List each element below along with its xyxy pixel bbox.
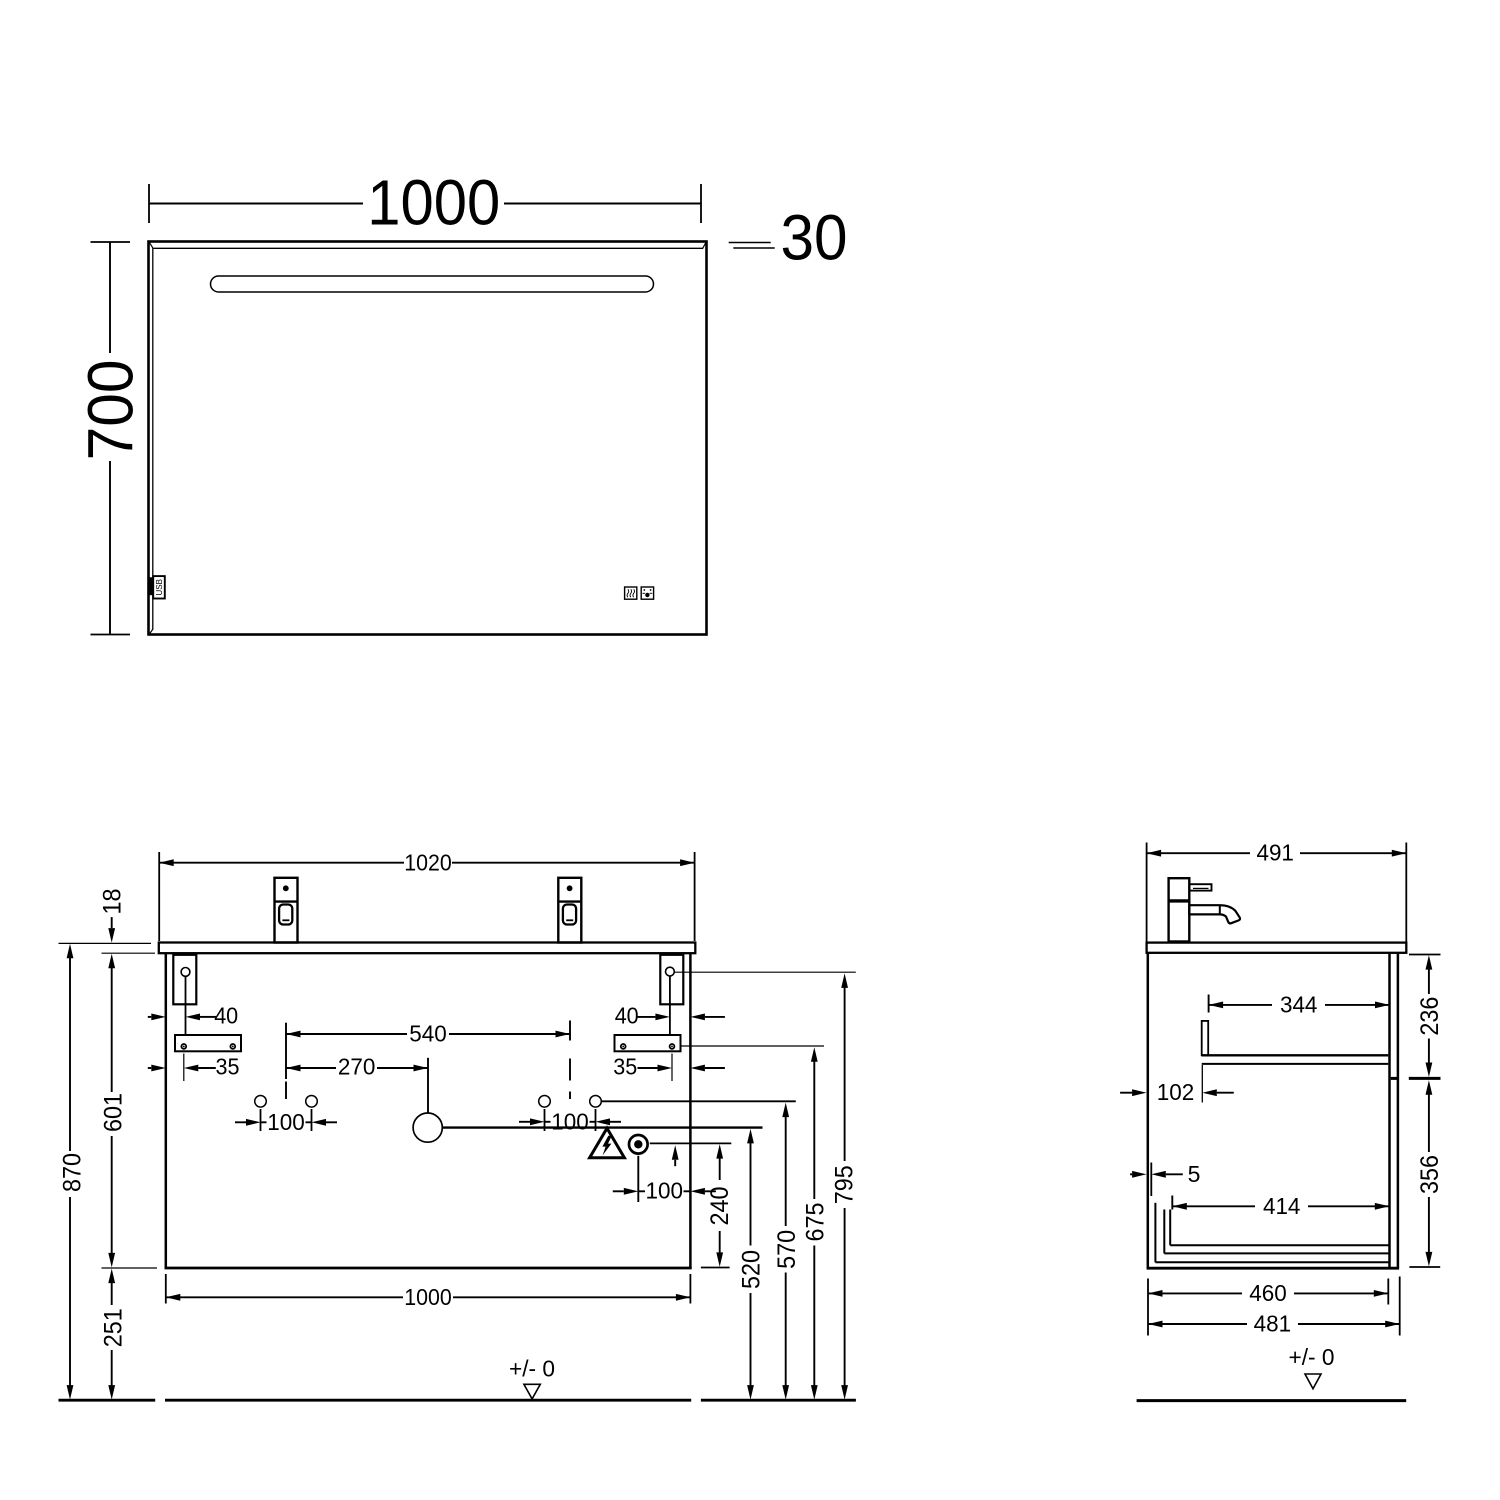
svg-text:18: 18: [99, 889, 127, 915]
svg-text:700: 700: [75, 359, 147, 460]
svg-text:100: 100: [267, 1109, 305, 1135]
svg-text:270: 270: [338, 1054, 376, 1080]
svg-text:540: 540: [409, 1020, 447, 1046]
svg-text:240: 240: [706, 1187, 734, 1226]
svg-text:601: 601: [100, 1093, 128, 1132]
svg-text:1020: 1020: [404, 849, 452, 875]
svg-text:251: 251: [100, 1308, 128, 1347]
svg-text:870: 870: [58, 1153, 86, 1192]
svg-text:100: 100: [646, 1178, 684, 1204]
svg-text:1000: 1000: [367, 167, 500, 239]
svg-text:460: 460: [1249, 1280, 1287, 1306]
svg-text:5: 5: [1188, 1161, 1201, 1187]
svg-text:570: 570: [773, 1230, 801, 1269]
svg-text:35: 35: [216, 1054, 240, 1080]
svg-text:356: 356: [1416, 1155, 1444, 1194]
svg-text:344: 344: [1280, 992, 1318, 1018]
svg-text:236: 236: [1416, 997, 1444, 1036]
svg-text:1000: 1000: [404, 1284, 452, 1310]
svg-text:40: 40: [214, 1003, 238, 1029]
svg-text:35: 35: [613, 1054, 637, 1080]
svg-text:102: 102: [1157, 1079, 1195, 1105]
svg-text:40: 40: [615, 1003, 639, 1029]
svg-text:30: 30: [781, 201, 848, 273]
svg-text:+/- 0: +/- 0: [509, 1356, 555, 1382]
svg-text:USB: USB: [155, 579, 164, 595]
svg-text:491: 491: [1256, 840, 1294, 866]
svg-text:414: 414: [1263, 1193, 1301, 1219]
svg-text:100: 100: [551, 1108, 589, 1134]
svg-text:481: 481: [1254, 1311, 1292, 1337]
svg-text:795: 795: [831, 1165, 859, 1204]
svg-text:+/- 0: +/- 0: [1289, 1344, 1335, 1370]
svg-text:520: 520: [737, 1250, 765, 1289]
svg-text:675: 675: [801, 1203, 829, 1242]
